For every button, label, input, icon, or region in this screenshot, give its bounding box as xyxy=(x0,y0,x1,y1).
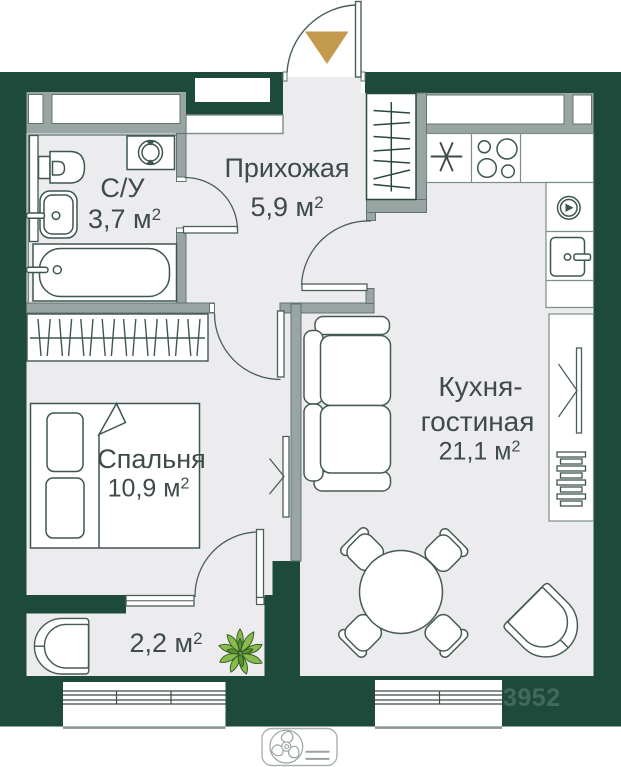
svg-text:Прихожая: Прихожая xyxy=(224,153,349,183)
svg-text:2,2 м2: 2,2 м2 xyxy=(129,628,202,658)
svg-text:21,1 м2: 21,1 м2 xyxy=(439,438,521,466)
svg-text:Спальня: Спальня xyxy=(97,444,206,474)
svg-text:5,9 м2: 5,9 м2 xyxy=(250,192,323,222)
svg-text:3952: 3952 xyxy=(503,684,561,712)
svg-text:гостиная: гостиная xyxy=(421,406,535,437)
svg-text:С/У: С/У xyxy=(100,173,145,203)
svg-text:3,7 м2: 3,7 м2 xyxy=(88,204,161,234)
svg-text:Кухня-: Кухня- xyxy=(438,371,522,402)
svg-text:10,9 м2: 10,9 м2 xyxy=(108,475,190,503)
